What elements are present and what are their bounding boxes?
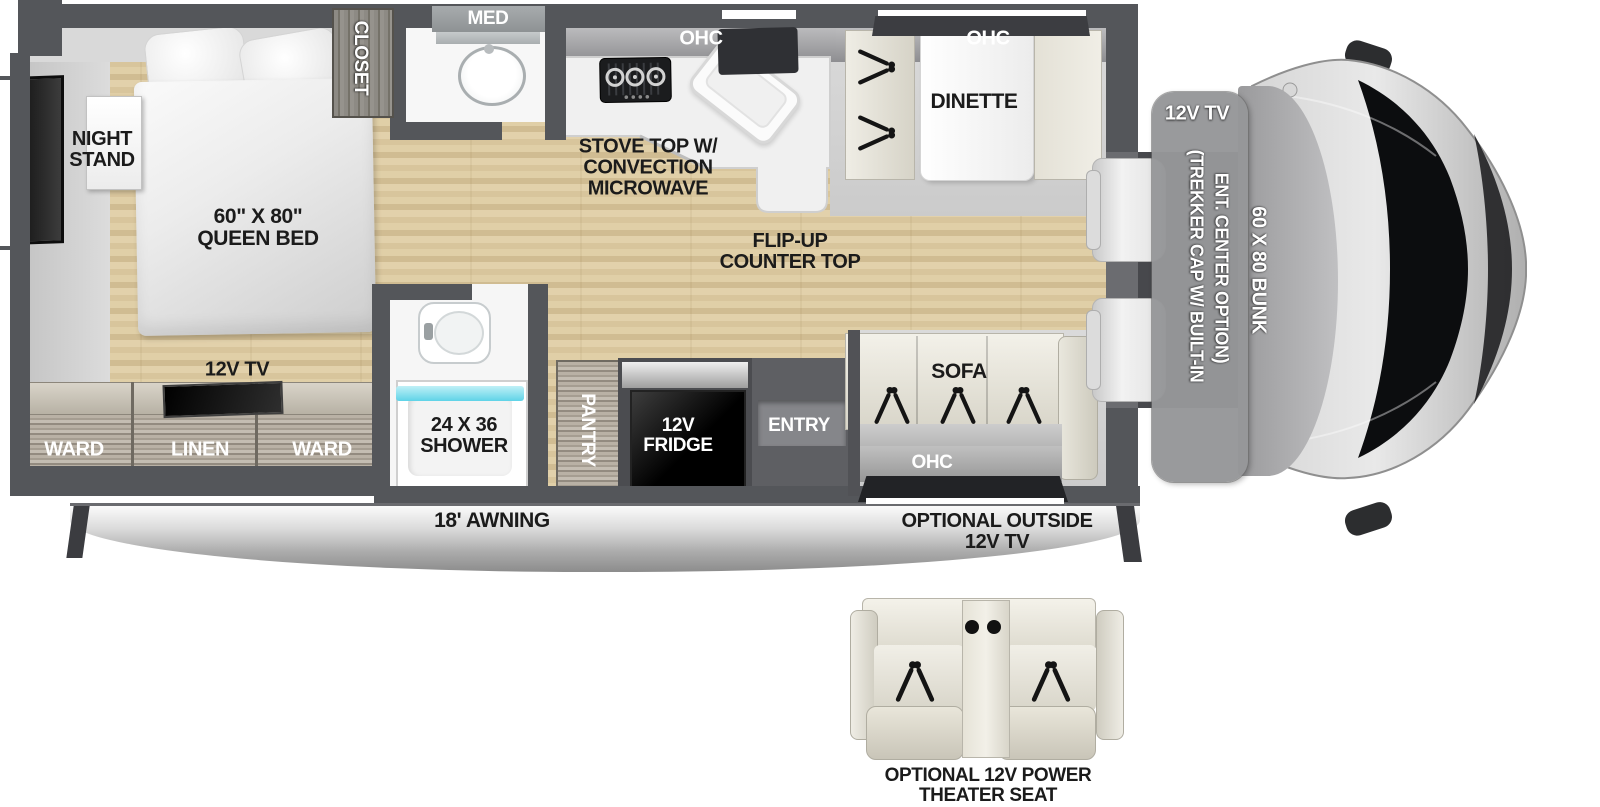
bunk-size-label: 60 X 80 BUNK xyxy=(1248,206,1269,333)
dresser-tv-icon xyxy=(162,381,283,418)
queen-bed-label: 60" X 80" QUEEN BED xyxy=(197,206,318,250)
rear-corner-wall xyxy=(18,0,62,56)
cab-divider-wall-lower xyxy=(1106,408,1138,496)
med-wall-bottom xyxy=(406,122,502,140)
med-cabinet-label: MED xyxy=(467,9,508,29)
toilet-icon xyxy=(418,302,491,364)
closet-label: CLOSET xyxy=(350,21,370,96)
cab-divider-wall-upper xyxy=(1106,4,1138,152)
stove-icon xyxy=(599,56,673,103)
seatbelt-icon xyxy=(1002,384,1046,426)
shower-water-line xyxy=(396,386,524,401)
theater-seat-front xyxy=(866,706,964,760)
bottom-wall-bedroom xyxy=(10,466,378,496)
kitchen-ohc-label: OHC xyxy=(679,29,722,50)
sofa-divider xyxy=(916,336,918,426)
entry-sofa-wall xyxy=(848,330,860,496)
rear-window xyxy=(0,76,10,250)
cab-seat-headrest xyxy=(1086,310,1101,390)
trekker-cap-label-line1: (TREKKER CAP W/ BUILT-IN xyxy=(1187,150,1206,383)
stove-microwave-label: STOVE TOP W/ CONVECTION MICROWAVE xyxy=(579,137,718,200)
theater-seat-front xyxy=(998,706,1096,760)
night-stand-label: NIGHT STAND xyxy=(69,129,134,171)
bath-wall-right xyxy=(528,284,548,496)
seatbelt-icon xyxy=(936,384,980,426)
dinette-label: DINETTE xyxy=(930,91,1017,113)
awning-label: 18' AWNING xyxy=(434,510,550,532)
entry-mat-strip xyxy=(866,498,1064,504)
rv-floorplan: CLOSET NIGHT STAND 60" X 80" QUEEN BED 1… xyxy=(0,0,1600,807)
cupholder-icon xyxy=(965,620,979,634)
dinette-bench xyxy=(1034,30,1102,180)
shower-label: 24 X 36 SHOWER xyxy=(420,415,508,457)
seatbelt-icon xyxy=(870,384,914,426)
linen-label: LINEN xyxy=(171,440,229,461)
seatbelt-icon xyxy=(1027,658,1075,704)
med-wall-right xyxy=(545,4,566,140)
sofa-label: SOFA xyxy=(931,361,987,383)
theater-seat-label: OPTIONAL 12V POWER THEATER SEAT xyxy=(885,766,1092,806)
trekker-cap-label-line2: ENT. CENTER OPTION) xyxy=(1212,173,1231,363)
theater-armrest xyxy=(1096,610,1124,740)
bath-wall-left xyxy=(372,284,390,496)
bath-wall-top xyxy=(372,284,472,300)
faucet-icon xyxy=(484,44,494,54)
ward-left-label: WARD xyxy=(44,440,104,461)
cab-seat-headrest xyxy=(1086,170,1101,250)
window-slot xyxy=(722,10,796,19)
side-mirror-icon xyxy=(1342,499,1395,538)
sofa-ohc-label: OHC xyxy=(911,453,952,473)
fridge-top xyxy=(622,362,748,388)
dinette-ohc-label: OHC xyxy=(966,29,1009,50)
rear-wall xyxy=(10,53,30,496)
med-shelf xyxy=(436,32,540,44)
dresser-divider xyxy=(131,382,134,468)
fridge-label: 12V FRIDGE xyxy=(643,416,712,456)
bedroom-tv-label: 12V TV xyxy=(205,360,269,381)
seatbelt-icon xyxy=(856,46,898,88)
cupholder-icon xyxy=(987,620,1001,634)
pantry-label: PANTRY xyxy=(577,393,597,467)
seatbelt-icon xyxy=(891,658,939,704)
range-vent-window xyxy=(717,27,798,75)
entry-label: ENTRY xyxy=(768,416,830,436)
outside-tv-label: OPTIONAL OUTSIDE 12V TV xyxy=(901,511,1092,553)
ward-right-label: WARD xyxy=(292,440,352,461)
bathroom-sink-icon xyxy=(458,46,526,106)
bunk-tv-label: 12V TV xyxy=(1165,104,1229,125)
seatbelt-icon xyxy=(856,112,898,154)
flip-up-counter-label: FLIP-UP COUNTER TOP xyxy=(720,231,861,273)
